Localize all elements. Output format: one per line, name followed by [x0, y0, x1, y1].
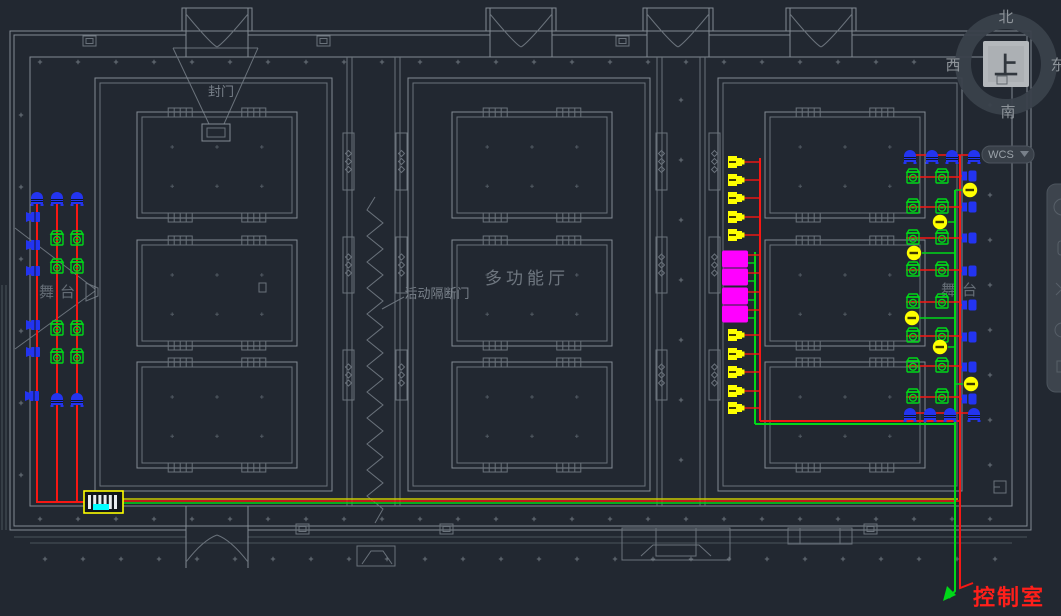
grid-marker — [260, 273, 264, 277]
ceiling-speaker[interactable] — [926, 150, 939, 164]
column-marker — [712, 270, 718, 276]
camera[interactable] — [907, 328, 919, 342]
grid-marker — [651, 557, 655, 561]
room-frame — [95, 78, 332, 491]
grid-marker — [888, 273, 892, 277]
grid-marker — [798, 145, 802, 149]
ceiling-coffer-inner — [457, 245, 607, 341]
grid-marker — [494, 517, 498, 521]
grid-marker — [760, 517, 764, 521]
grid-marker — [260, 434, 264, 438]
grid-marker — [679, 398, 683, 402]
column-marker — [712, 364, 718, 370]
grid-marker — [841, 557, 845, 561]
grid-marker — [843, 184, 847, 188]
grid-marker — [608, 517, 612, 521]
wall-fixture-inner — [619, 39, 626, 44]
camera[interactable] — [936, 328, 948, 342]
column-marker — [346, 380, 352, 386]
grid-marker — [260, 145, 264, 149]
grid-marker — [575, 557, 579, 561]
column-marker — [399, 167, 405, 173]
wall-speaker[interactable] — [962, 202, 977, 213]
ceiling-speaker[interactable] — [904, 408, 917, 422]
grid-marker — [874, 60, 878, 64]
building-detail — [19, 8, 997, 568]
horn-speaker[interactable] — [728, 229, 745, 241]
grid-marker — [684, 517, 688, 521]
ceiling-coffer-inner — [770, 245, 920, 341]
door-vestibule — [486, 8, 556, 31]
grid-marker — [646, 60, 650, 64]
camera[interactable] — [936, 358, 948, 372]
grid-marker — [304, 60, 308, 64]
grid-marker — [537, 557, 541, 561]
column-marker — [346, 262, 352, 268]
grid-marker — [485, 395, 489, 399]
ceiling-coffer-inner — [457, 117, 607, 213]
horn-speaker[interactable] — [728, 385, 745, 397]
ceiling-coffer — [765, 362, 925, 468]
grid-marker — [988, 328, 992, 332]
wall-fixture-inner — [86, 39, 93, 44]
grid-marker — [19, 329, 23, 333]
grid-marker — [43, 557, 47, 561]
grid-marker — [157, 557, 161, 561]
door-opening — [186, 527, 248, 538]
grid-marker — [798, 184, 802, 188]
ceiling-coffer — [452, 112, 612, 218]
column-marker — [712, 380, 718, 386]
wall-fixture — [317, 36, 330, 46]
column-marker — [346, 167, 352, 173]
camera[interactable] — [936, 199, 948, 213]
rack-unit — [109, 495, 112, 509]
vestibule-2 — [622, 528, 730, 560]
grid-marker — [530, 145, 534, 149]
side-speaker[interactable] — [26, 240, 40, 250]
grid-marker — [19, 113, 23, 117]
horn-speaker[interactable] — [728, 156, 745, 168]
grid-marker — [575, 184, 579, 188]
grid-marker — [689, 557, 693, 561]
grid-marker — [228, 517, 232, 521]
grid-marker — [843, 312, 847, 316]
grid-marker — [722, 517, 726, 521]
grid-marker — [530, 434, 534, 438]
grid-marker — [114, 517, 118, 521]
wall-fixture-inner — [867, 527, 874, 532]
grid-marker — [532, 517, 536, 521]
grid-marker — [485, 145, 489, 149]
side-speaker[interactable] — [26, 347, 40, 357]
movable-partition-zigzag — [367, 197, 383, 523]
ceiling-coffer — [765, 112, 925, 218]
wall-speaker[interactable] — [962, 233, 977, 244]
grid-marker — [456, 517, 460, 521]
grid-marker — [760, 60, 764, 64]
grid-marker — [798, 60, 802, 64]
grid-marker — [485, 184, 489, 188]
navigation-bar[interactable] — [1047, 184, 1061, 392]
ceiling-speaker[interactable] — [31, 192, 44, 206]
camera[interactable] — [907, 358, 919, 372]
grid-marker — [570, 60, 574, 64]
grid-marker — [988, 373, 992, 377]
horn-speaker[interactable] — [728, 366, 745, 378]
horn-speaker[interactable] — [728, 348, 745, 360]
grid-marker — [679, 278, 683, 282]
grid-marker — [215, 434, 219, 438]
ceiling-speaker[interactable] — [51, 393, 64, 407]
grid-marker — [874, 517, 878, 521]
grid-marker — [260, 312, 264, 316]
room-frame-inner — [100, 83, 327, 486]
column-box — [396, 350, 407, 400]
viewcube-west-label[interactable]: 西 — [945, 57, 960, 74]
stage-monitor — [86, 283, 98, 301]
ceiling-speaker[interactable] — [968, 408, 981, 422]
wall-speaker[interactable] — [962, 266, 977, 277]
wall-speaker[interactable] — [962, 362, 977, 373]
column-marker — [712, 151, 718, 157]
ceiling-speaker[interactable] — [51, 192, 64, 206]
grid-marker — [215, 273, 219, 277]
grid-marker — [532, 60, 536, 64]
partition-label[interactable]: 活动隔断门 — [404, 286, 469, 301]
door-vestibule — [643, 8, 713, 31]
grid-marker — [917, 557, 921, 561]
apron-lines — [2, 285, 1027, 543]
column-marker — [712, 262, 718, 268]
wall-fixture — [83, 36, 96, 46]
grid-marker — [38, 60, 42, 64]
ceiling-speaker[interactable] — [71, 393, 84, 407]
camera[interactable] — [907, 262, 919, 276]
grid-marker — [190, 60, 194, 64]
dome-camera[interactable] — [964, 377, 978, 391]
grid-marker — [888, 145, 892, 149]
control-panel[interactable] — [722, 288, 748, 305]
ceiling-speaker[interactable] — [944, 408, 957, 422]
wall-speaker[interactable] — [962, 171, 977, 182]
dome-camera[interactable] — [905, 311, 919, 325]
grid-marker — [456, 60, 460, 64]
ceiling-speaker[interactable] — [946, 150, 959, 164]
grid-marker — [380, 517, 384, 521]
horn-speaker[interactable] — [728, 192, 745, 204]
horn-speaker[interactable] — [728, 402, 745, 414]
dome-camera[interactable] — [933, 340, 947, 354]
grid-marker — [114, 60, 118, 64]
wall-speaker[interactable] — [962, 332, 977, 343]
grid-marker — [570, 517, 574, 521]
grid-marker — [215, 145, 219, 149]
horn-speaker[interactable] — [728, 174, 745, 186]
ceiling-coffer — [137, 240, 297, 346]
grid-marker — [575, 434, 579, 438]
grid-marker — [119, 557, 123, 561]
camera[interactable] — [936, 262, 948, 276]
grid-marker — [266, 517, 270, 521]
camera[interactable] — [936, 389, 948, 403]
grid-marker — [843, 434, 847, 438]
seal-door-label[interactable]: 封门 — [208, 84, 234, 99]
grid-marker — [233, 557, 237, 561]
grid-marker — [912, 517, 916, 521]
grid-marker — [530, 312, 534, 316]
ceiling-speaker[interactable] — [924, 408, 937, 422]
viewcube[interactable]: 上 北 西 东 南 — [945, 9, 1061, 121]
door-vestibule — [182, 8, 252, 31]
dome-camera[interactable] — [933, 215, 947, 229]
grid-marker — [304, 517, 308, 521]
rack-unit — [88, 495, 91, 509]
grid-marker — [215, 184, 219, 188]
control-panel[interactable] — [722, 251, 748, 268]
grid-marker — [684, 60, 688, 64]
ceiling-coffer-inner — [142, 117, 292, 213]
wcs-label[interactable]: WCS — [988, 149, 1014, 161]
projector-box-inner — [207, 128, 225, 137]
partition-leader — [382, 297, 404, 309]
grid-marker — [608, 60, 612, 64]
grid-marker — [843, 273, 847, 277]
grid-marker — [170, 434, 174, 438]
grid-marker — [494, 60, 498, 64]
column-marker — [346, 372, 352, 378]
grid-marker — [271, 557, 275, 561]
column-marker — [399, 364, 405, 370]
control-room-label[interactable]: 控制室 — [973, 585, 1045, 610]
vestibule-1 — [357, 546, 395, 566]
wall-fixture-inner — [320, 39, 327, 44]
grid-marker — [679, 338, 683, 342]
grid-marker — [380, 60, 384, 64]
grid-marker — [993, 557, 997, 561]
grid-marker — [879, 557, 883, 561]
horn-speaker[interactable] — [728, 211, 745, 223]
ceiling-speaker[interactable] — [904, 150, 917, 164]
ceiling-coffer-inner — [770, 117, 920, 213]
projector-box — [202, 124, 230, 141]
hall-label[interactable]: 多功能厅 — [485, 269, 569, 288]
cable-green[interactable] — [949, 424, 955, 598]
grid-marker — [679, 158, 683, 162]
grid-marker — [228, 60, 232, 64]
grid-marker — [988, 418, 992, 422]
column-marker — [346, 364, 352, 370]
grid-marker — [170, 273, 174, 277]
grid-marker — [798, 312, 802, 316]
camera[interactable] — [907, 389, 919, 403]
grid-marker — [575, 395, 579, 399]
grid-marker — [798, 517, 802, 521]
grid-marker — [798, 395, 802, 399]
grid-marker — [19, 185, 23, 189]
door-vestibule — [786, 8, 856, 31]
column-marker — [346, 159, 352, 165]
camera[interactable] — [907, 294, 919, 308]
ceiling-coffer-inner — [142, 367, 292, 463]
grid-marker — [215, 395, 219, 399]
wall-fixture-inner — [443, 527, 450, 532]
grid-marker — [727, 557, 731, 561]
grid-marker — [575, 145, 579, 149]
camera[interactable] — [907, 230, 919, 244]
stage-left-label[interactable]: 舞台 — [39, 284, 81, 301]
side-speaker[interactable] — [26, 266, 40, 276]
room-frame-inner — [723, 83, 957, 486]
wall-speaker[interactable] — [962, 300, 977, 311]
grid-marker — [575, 273, 579, 277]
ceiling-coffer — [452, 362, 612, 468]
grid-marker — [266, 60, 270, 64]
grid-marker — [530, 184, 534, 188]
grid-marker — [170, 312, 174, 316]
wall-speaker[interactable] — [962, 394, 977, 405]
grid-marker — [803, 557, 807, 561]
grid-marker — [798, 273, 802, 277]
grid-marker — [418, 60, 422, 64]
grid-marker — [19, 257, 23, 261]
viewcube-south-label[interactable]: 南 — [1000, 104, 1015, 121]
grid-marker — [76, 517, 80, 521]
grid-marker — [888, 312, 892, 316]
control-panel[interactable] — [722, 269, 748, 286]
camera[interactable] — [907, 169, 919, 183]
grid-marker — [309, 557, 313, 561]
ceiling-coffer-inner — [142, 245, 292, 341]
ceiling-coffer — [137, 362, 297, 468]
grid-marker — [81, 557, 85, 561]
grid-marker — [530, 395, 534, 399]
grid-marker — [260, 184, 264, 188]
grid-marker — [843, 145, 847, 149]
ceiling-coffer — [765, 240, 925, 346]
grid-marker — [888, 395, 892, 399]
column-marker — [399, 380, 405, 386]
grid-marker — [347, 557, 351, 561]
grid-marker — [613, 557, 617, 561]
door-swing-arcs — [186, 535, 248, 562]
wcs-dropdown[interactable]: WCS — [982, 146, 1034, 163]
grid-marker — [76, 60, 80, 64]
ceiling-speaker[interactable] — [71, 192, 84, 206]
grid-marker — [342, 60, 346, 64]
dome-camera[interactable] — [963, 183, 977, 197]
grid-marker — [888, 184, 892, 188]
ceiling-coffer-inner — [770, 367, 920, 463]
grid-marker — [912, 60, 916, 64]
column-marker — [399, 254, 405, 260]
column-box — [396, 237, 407, 293]
grid-marker — [679, 458, 683, 462]
wall-fixture-inner — [299, 527, 306, 532]
column-marker — [712, 254, 718, 260]
grid-marker — [679, 98, 683, 102]
grid-marker — [575, 312, 579, 316]
camera[interactable] — [907, 199, 919, 213]
side-speaker[interactable] — [26, 320, 40, 330]
grid-marker — [888, 434, 892, 438]
control-panel[interactable] — [722, 306, 748, 323]
ceiling-coffer-inner — [457, 367, 607, 463]
grid-marker — [19, 401, 23, 405]
grid-marker — [152, 517, 156, 521]
grid-marker — [988, 283, 992, 287]
grid-marker — [418, 517, 422, 521]
column-marker — [346, 270, 352, 276]
grid-marker — [988, 238, 992, 242]
ceiling-speaker[interactable] — [968, 150, 981, 164]
side-speaker[interactable] — [25, 391, 39, 401]
grid-marker — [260, 395, 264, 399]
column-marker — [399, 151, 405, 157]
detail-box — [259, 283, 266, 292]
column-box — [396, 133, 407, 190]
column-marker — [712, 372, 718, 378]
cad-viewport[interactable]: 封门 活动隔断门 多功能厅 舞台 舞台 控制室 上 北 西 东 南 WCS — [0, 0, 1061, 616]
column-marker — [399, 159, 405, 165]
viewcube-top-label[interactable]: 上 — [994, 53, 1018, 80]
grid-marker — [798, 434, 802, 438]
grid-marker — [215, 312, 219, 316]
grid-marker — [988, 463, 992, 467]
camera[interactable] — [936, 230, 948, 244]
grid-marker — [499, 557, 503, 561]
column-marker — [346, 151, 352, 157]
grid-marker — [988, 517, 992, 521]
grid-marker — [722, 60, 726, 64]
grid-marker — [152, 60, 156, 64]
grid-marker — [170, 395, 174, 399]
grid-marker — [461, 557, 465, 561]
grid-marker — [988, 193, 992, 197]
camera[interactable] — [936, 169, 948, 183]
grid-marker — [385, 557, 389, 561]
dome-camera[interactable] — [907, 246, 921, 260]
ceiling-coffer — [452, 240, 612, 346]
column-marker — [399, 270, 405, 276]
grid-marker — [843, 395, 847, 399]
wall-fixture — [616, 36, 629, 46]
grid-marker — [342, 517, 346, 521]
grid-marker — [679, 218, 683, 222]
grid-marker — [485, 312, 489, 316]
grid-marker — [170, 184, 174, 188]
grid-marker — [836, 517, 840, 521]
grid-marker — [423, 557, 427, 561]
column-marker — [712, 159, 718, 165]
column-marker — [399, 262, 405, 268]
column-marker — [399, 372, 405, 378]
viewcube-north-label[interactable]: 北 — [998, 9, 1013, 26]
grid-marker — [836, 60, 840, 64]
grid-marker — [485, 434, 489, 438]
horn-speaker[interactable] — [728, 329, 745, 341]
grid-marker — [765, 557, 769, 561]
grid-marker — [646, 517, 650, 521]
grid-marker — [195, 557, 199, 561]
column-marker — [712, 167, 718, 173]
grid-marker — [38, 517, 42, 521]
viewcube-east-label[interactable]: 东 — [1050, 57, 1061, 74]
grid-marker — [19, 473, 23, 477]
side-speaker[interactable] — [26, 212, 40, 222]
grid-marker — [190, 517, 194, 521]
grid-marker — [170, 145, 174, 149]
